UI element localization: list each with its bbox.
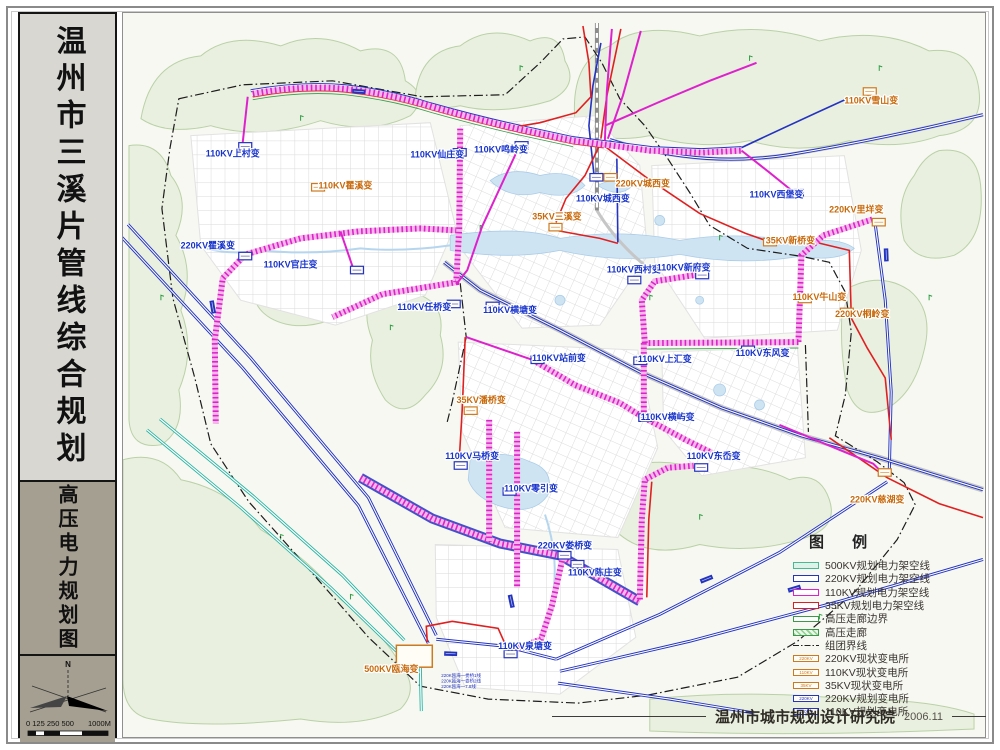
north-arrow-icon	[30, 686, 108, 712]
substation: 110KV西堡变	[750, 188, 804, 199]
compass-scale-block: N 0 125 250 500 1000M	[20, 656, 115, 742]
legend-item: 高压走廊	[793, 625, 985, 638]
line-annotations: 220K瓯海一娄桥1线220K瓯海一娄桥2线220K瓯海一7.8线	[441, 672, 481, 690]
legend-swatch-sub-planned: 220KV	[793, 695, 819, 702]
substation: 110KV零引变	[503, 483, 558, 495]
legend-swatch-corridor-edge	[793, 616, 819, 622]
substation-label: 110KV上村变	[206, 148, 260, 159]
substation-label: 110KV站前变	[532, 352, 586, 363]
legend-item: 组团界线	[793, 639, 985, 652]
substation: 110KV东风变	[736, 346, 790, 358]
legend-swatch-corridor	[793, 629, 819, 636]
substation-label: 220KV瞿溪变	[181, 239, 235, 250]
substation-label: 220KV桐岭变	[835, 308, 889, 319]
line-annotation: 220K瓯海一7.8线	[441, 683, 476, 690]
legend-item: 220KV规划电力架空线	[793, 572, 985, 585]
date: 2006.11	[904, 711, 943, 723]
substation-label: 110KV陈庄变	[568, 566, 622, 577]
substation: 110KV牛山变	[792, 291, 846, 302]
substation-label: 110KV西堡变	[750, 188, 804, 199]
substation-label: 110KV新府变	[657, 261, 711, 272]
scale-unit: 1000M	[88, 719, 111, 728]
substation-label: 110KV瞿溪变	[319, 180, 373, 191]
footer-rule-right	[952, 716, 986, 717]
substation-label: 110KV西村变	[607, 263, 661, 274]
legend-title: 图 例	[809, 531, 985, 552]
legend-swatch-line-500	[793, 562, 819, 569]
legend-swatch-sub-existing: 220KV	[793, 655, 819, 662]
sheet-title: 温州市三溪片管线综合规划	[46, 25, 90, 469]
substation-label: 110KV牛山变	[792, 291, 846, 302]
substation-label: 110KV上汇变	[638, 353, 692, 364]
legend: 图 例 500KV规划电力架空线220KV规划电力架空线110KV规划电力架空线…	[793, 531, 985, 719]
substation: 110KV上汇变	[634, 353, 692, 364]
substation-label: 220KV里垟变	[829, 203, 883, 214]
substation-label: 110KV零引变	[504, 483, 558, 494]
substation-label: 35KV潘桥变	[456, 394, 505, 405]
legend-item: 220KV220KV现状变电所	[793, 652, 985, 665]
substation-label: 220KV慈湖变	[850, 494, 904, 505]
sheet-subtitle: 高压电力规划图	[53, 484, 82, 652]
substation-label: 110KV东风变	[736, 347, 790, 358]
substation-label: 110KV雪山变	[844, 95, 898, 106]
substation: 110KV仙庄变	[410, 149, 466, 160]
sheet-title-block: 温州市三溪片管线综合规划	[20, 14, 115, 482]
substation-label: 110KV官庄变	[264, 258, 318, 269]
substation-label: 110KV马桥变	[445, 450, 499, 461]
substation: 110KV站前变	[531, 352, 586, 363]
substation-label: 500KV瓯海变	[364, 663, 418, 674]
legend-item: 220KV220KV规划变电所	[793, 692, 985, 705]
legend-item: 35KV规划电力架空线	[793, 599, 985, 612]
legend-rows: 500KV规划电力架空线220KV规划电力架空线110KV规划电力架空线35KV…	[793, 559, 985, 719]
substation-label: 35KV新桥变	[766, 234, 815, 245]
legend-item: 500KV规划电力架空线	[793, 559, 985, 572]
sheet-subtitle-block: 高压电力规划图	[20, 482, 115, 656]
substation-label: 110KV泉塘变	[498, 640, 552, 651]
footer-attribution: 温州市城市规划设计研究院 2006.11	[552, 706, 986, 727]
legend-item: 110KV规划电力架空线	[793, 586, 985, 599]
substation-label: 220KV娄桥变	[538, 540, 592, 551]
substation: 110KV横屿变	[639, 411, 695, 422]
substation: 35KV新桥变	[764, 234, 816, 245]
footer-rule-left	[552, 716, 706, 717]
substation: 220KV桐岭变	[835, 308, 889, 319]
substation-label: 220KV城西变	[616, 178, 670, 189]
substation-label: 110KV城西变	[576, 192, 630, 203]
design-institute: 温州市城市规划设计研究院	[715, 706, 895, 727]
legend-swatch-line-35	[793, 602, 819, 609]
legend-item: 110KV110KV现状变电所	[793, 665, 985, 678]
substation-label: 110KV鸣岭变	[474, 144, 528, 155]
legend-swatch-cluster-line	[793, 642, 819, 649]
substation: 110KV任桥变	[397, 300, 460, 312]
substation: 500KV瓯海变	[364, 663, 418, 674]
legend-swatch-sub-existing: 35KV	[793, 682, 819, 689]
substation-label: 110KV东岙变	[687, 450, 741, 461]
scale-label: 0 125 250 500	[26, 719, 74, 728]
scale-bar	[28, 731, 108, 736]
legend-swatch-sub-existing: 110KV	[793, 669, 819, 676]
legend-swatch-line-110	[793, 589, 819, 596]
legend-swatch-line-220	[793, 575, 819, 582]
compass-scale-graphic: N 0 125 250 500 1000M	[22, 656, 114, 742]
substation-label: 35KV三溪变	[532, 210, 581, 221]
legend-item: 35KV35KV现状变电所	[793, 679, 985, 692]
substation-label: 110KV任桥变	[397, 301, 451, 312]
legend-item: 高压走廊边界	[793, 612, 985, 625]
substation-label: 110KV横塘变	[483, 304, 537, 315]
substation: 110KV瞿溪变	[312, 180, 373, 191]
substation-label: 110KV横屿变	[641, 411, 695, 422]
north-label: N	[65, 660, 71, 669]
map-sheet: 温州市三溪片管线综合规划 高压电力规划图 N 0 125 250 500 100…	[0, 0, 1000, 750]
substation-label: 110KV仙庄变	[410, 149, 464, 160]
title-sidebar: 温州市三溪片管线综合规划 高压电力规划图 N 0 125 250 500 100…	[18, 12, 117, 738]
